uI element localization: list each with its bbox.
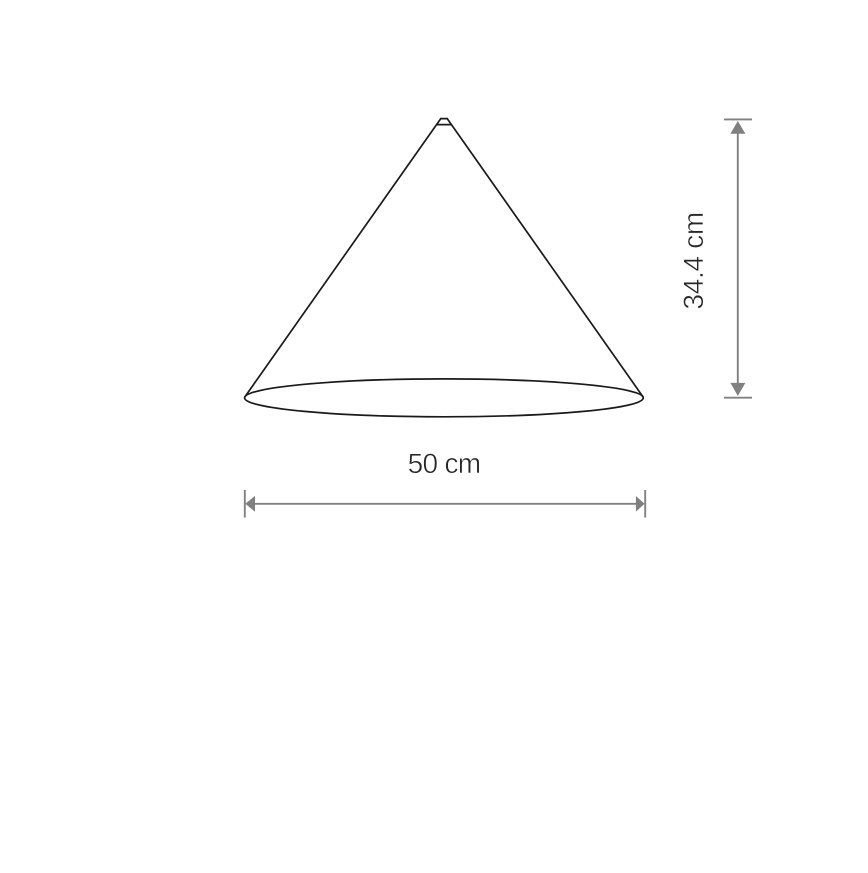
svg-text:34.4 cm: 34.4 cm <box>678 212 709 310</box>
svg-text:50 cm: 50 cm <box>408 448 481 479</box>
